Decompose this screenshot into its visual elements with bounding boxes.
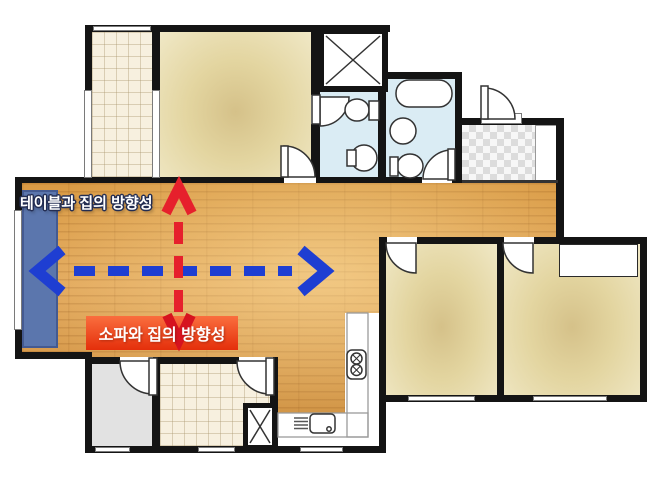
arrows-layer — [0, 0, 658, 481]
red-direction-arrow — [166, 187, 192, 312]
blue-arrowhead-left-icon — [37, 250, 62, 292]
floor-plan: 소파와 집의 방향성 테이블과 집의 방향성 — [0, 0, 658, 481]
red-arrowhead-up-icon — [166, 187, 192, 213]
blue-arrowhead-right-icon — [301, 250, 326, 292]
